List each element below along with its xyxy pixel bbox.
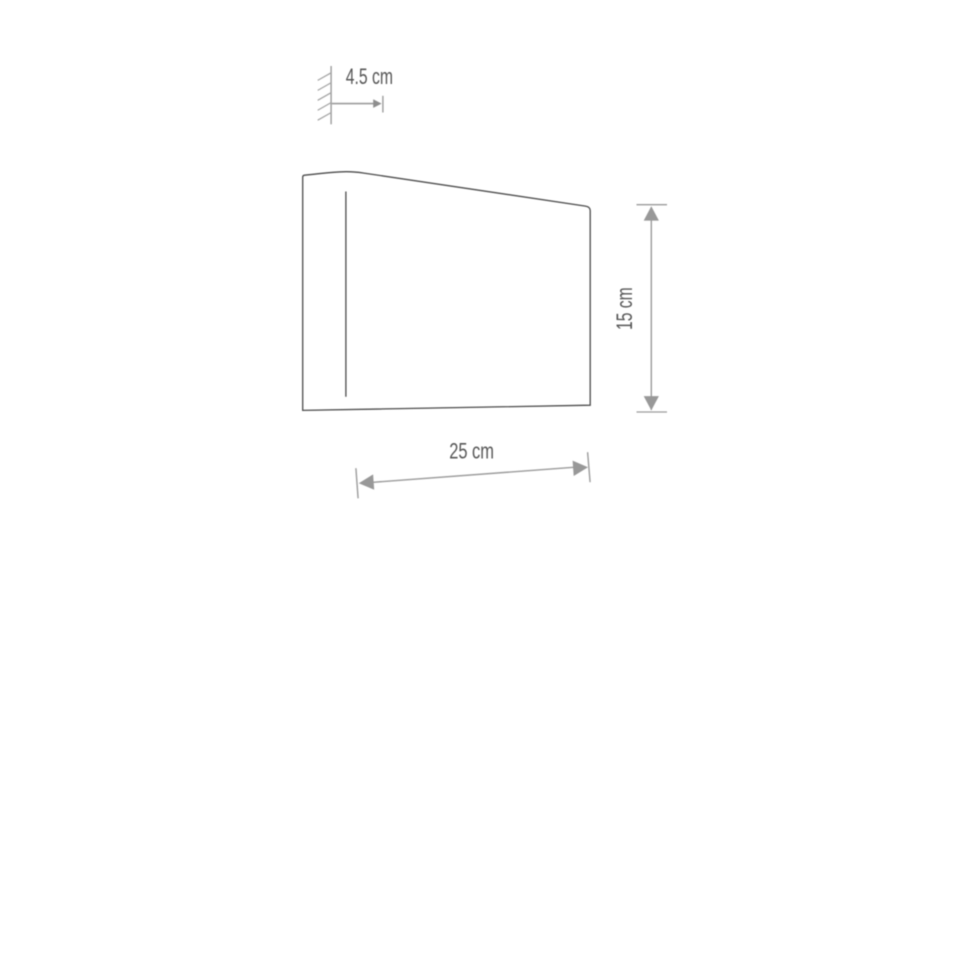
svg-text:25 cm: 25 cm <box>449 438 494 463</box>
svg-text:4.5 cm: 4.5 cm <box>346 64 393 89</box>
svg-text:15 cm: 15 cm <box>612 287 637 330</box>
